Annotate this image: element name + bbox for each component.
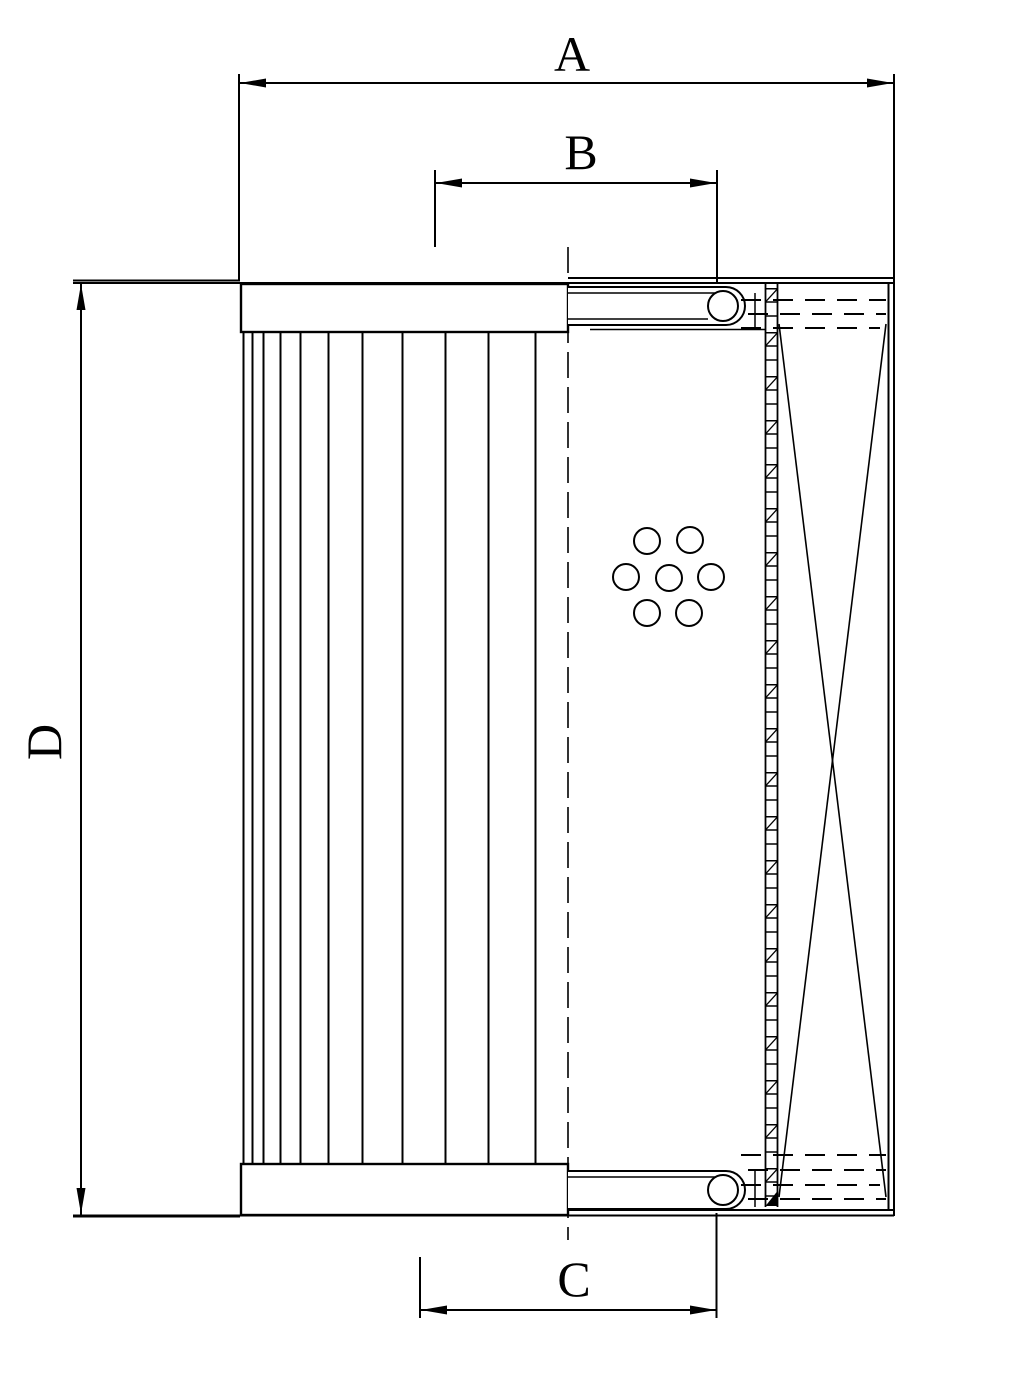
dim-label-d: D xyxy=(16,724,72,760)
o-ring-bottom xyxy=(708,1175,738,1205)
o-ring-top xyxy=(708,291,738,321)
arrowhead-d-top xyxy=(77,284,86,310)
dim-label-b: B xyxy=(564,124,597,180)
arrowhead-d-bottom xyxy=(77,1188,86,1214)
arrowhead-b-right xyxy=(690,179,716,188)
arrowhead-a-right xyxy=(867,79,893,88)
dim-label-c: C xyxy=(557,1251,590,1307)
seal-hatch-bottom xyxy=(741,1155,886,1199)
seal-hatch-top xyxy=(741,300,886,328)
spring-hatch-strip xyxy=(766,284,778,1207)
perforation-holes xyxy=(613,527,724,626)
dimension-b xyxy=(435,170,717,283)
bottom-cap-section xyxy=(568,1171,755,1209)
pleated-media-lines xyxy=(244,332,536,1164)
arrowhead-c-right xyxy=(690,1306,716,1315)
top-end-cap xyxy=(241,284,568,332)
dim-label-a: A xyxy=(554,26,590,82)
dimension-d xyxy=(73,281,240,1217)
drawing-canvas: A B C D xyxy=(0,0,1016,1390)
arrowhead-c-left xyxy=(421,1306,447,1315)
arrowhead-a-left xyxy=(240,79,266,88)
media-x-cross xyxy=(779,324,886,1197)
top-cap-section xyxy=(568,287,765,330)
arrowhead-b-left xyxy=(436,179,462,188)
bottom-end-cap xyxy=(241,1164,568,1215)
filter-element-drawing: A B C D xyxy=(0,0,1016,1390)
